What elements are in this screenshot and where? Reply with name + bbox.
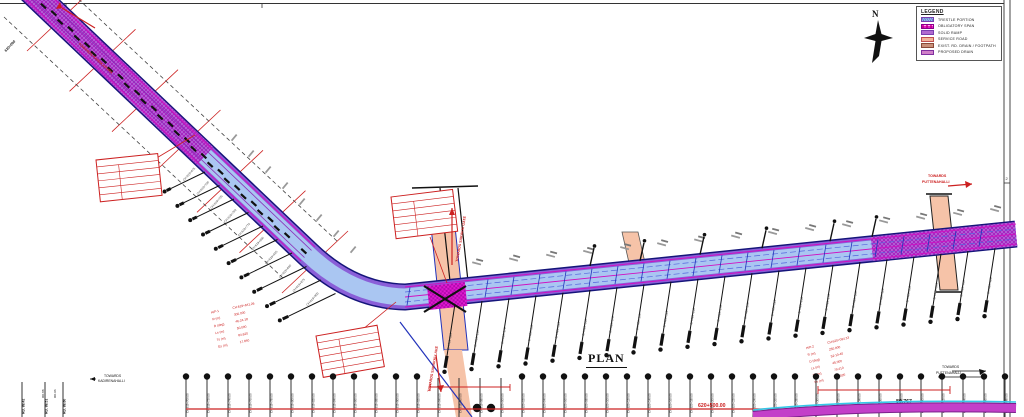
chainage-label: CH:620+000 [527, 324, 534, 342]
chainage-tick-blob [607, 339, 609, 351]
pier-cap [582, 373, 588, 379]
north-arrow-icon [864, 20, 893, 63]
utility-mark [661, 239, 668, 243]
table-cell: 84.620 [238, 331, 249, 337]
pier-chainage-label: CH:619+840.00 [333, 393, 337, 413]
chainage-label: CH:619+950 [473, 330, 480, 348]
chainage-tick-end [163, 190, 167, 194]
chainage-tick-end [523, 361, 527, 365]
utility-mark [805, 227, 814, 231]
table-cell: HIP-2 [806, 344, 815, 350]
chainage-tick-end [252, 290, 256, 294]
utility-mark [735, 232, 742, 236]
above-road-mark [590, 248, 594, 266]
utility-mark [842, 223, 851, 227]
cross-road-cap [412, 186, 478, 188]
above-road-mark [700, 237, 704, 255]
pier-chainage-label: CH:620+160.00 [669, 393, 673, 413]
chainage-tick-blob [244, 274, 249, 276]
legend-swatch-icon [921, 17, 934, 22]
chainage-tick-blob [231, 260, 236, 262]
utility-mark [809, 224, 816, 228]
chainage-label: CH:620+250 [797, 296, 804, 314]
legend-item: SOLID RAMP [921, 30, 999, 35]
table-cell: 79.410 [834, 366, 845, 372]
pier-cap [729, 373, 735, 379]
pier-cap [939, 373, 945, 379]
chainage-tick-end [469, 367, 473, 371]
chainage-tick-blob [769, 322, 771, 334]
pier-chainage-label: CH:619+780.00 [270, 393, 274, 413]
solid-ramp-hatch [28, 0, 205, 156]
pier-cap [414, 373, 420, 379]
chainage-label: CH:620+325 [878, 288, 885, 306]
pier-chainage-label: CH:619+920.00 [417, 393, 421, 413]
chainage-tick-end [442, 370, 446, 374]
legend-swatch-icon [921, 37, 934, 42]
pier-cap [624, 373, 630, 379]
pier-chainage-label: CH:620+120.00 [627, 393, 631, 413]
table-cell: HIP-1 [211, 309, 220, 315]
road-centerline [405, 234, 1016, 297]
utility-mark [916, 216, 925, 220]
pier-cap [918, 373, 924, 379]
chainage-tick-end [685, 345, 689, 349]
table-cell: Ls (m) [811, 365, 821, 371]
table-cell: Es (m) [218, 343, 228, 349]
chainage-tick-blob [796, 320, 798, 332]
pier-chainage-label: CH:620+000.00 [501, 393, 505, 413]
pier-cap [372, 373, 378, 379]
pier-chainage-label: CH:620+040.00 [543, 393, 547, 413]
chainage-tick-end [214, 247, 218, 251]
north-label: N [872, 9, 879, 19]
chainage-tick-blob [283, 316, 289, 319]
chainage-label: CH:620+075 [608, 316, 615, 334]
above-road-mark [830, 223, 834, 241]
chainage-tick-end [175, 204, 179, 208]
pier-cap [246, 373, 252, 379]
utility-mark [768, 231, 777, 235]
table-cell: 250.000 [829, 345, 841, 352]
chainage-tick-end [847, 328, 851, 332]
lane-line [405, 229, 1016, 292]
utility-mark [731, 235, 740, 239]
utility-mark [883, 216, 890, 220]
chainage-tick-end [793, 333, 797, 337]
chainage-tick-end [188, 218, 192, 222]
pier-cap [561, 373, 567, 379]
chainage-label: CH:620+425 [986, 277, 993, 295]
utility-mark [282, 182, 289, 189]
chainage-tick-end [712, 342, 716, 346]
towards-label-right: PUTTENAHALLI [922, 180, 950, 184]
chainage-tick-end [928, 320, 932, 324]
pier-chainage-label: CH:619+940.00 [438, 393, 442, 413]
legend-item: OBLIGATORY SPAN [921, 24, 999, 29]
chainage-tick-end [766, 336, 770, 340]
elev-left-label: RD. 88.51 [45, 399, 49, 414]
chainage-label: CH:620+300 [851, 291, 858, 309]
utility-mark [583, 250, 592, 254]
chainage-label: CH:620+200 [743, 302, 750, 320]
pier-cap [204, 373, 210, 379]
pier-chainage-label: CH:619+860.00 [354, 393, 358, 413]
pier-cap [267, 373, 273, 379]
towards-label-right: TOWARDS [928, 174, 947, 178]
pier-cap [183, 373, 189, 379]
legend-item-label: EXIST. RD. DRAIN / FOOTPATH [938, 44, 996, 48]
chainage-tick-blob [499, 350, 501, 362]
legend-swatch-icon [921, 43, 934, 48]
border-tick-label: 2 [1006, 176, 1009, 181]
chainage-tick-blob [823, 317, 825, 329]
chainage-label: CH:620+050 [581, 318, 588, 336]
elev-left-label: RD. 88.60 [63, 399, 67, 414]
pier-cap [750, 373, 756, 379]
utility-mark [846, 220, 853, 224]
utility-mark [476, 258, 483, 262]
table-cell: CH:620+094.33 [827, 336, 850, 345]
chainage-label: CH:620+175 [716, 305, 723, 323]
above-road-mark-end [833, 219, 837, 223]
pier-cap [834, 373, 840, 379]
chainage-tick-blob [580, 342, 582, 354]
pier-cap [309, 373, 315, 379]
chainage-label: CH:620+400 [959, 279, 966, 297]
utility-mark [513, 255, 520, 259]
pier-chainage-label: CH:620+220.00 [732, 393, 736, 413]
pier-chainage-label: CH:619+760.00 [249, 393, 253, 413]
legend-swatch-icon [921, 30, 934, 35]
pier-chainage-label: CH:620+060.00 [564, 393, 568, 413]
chainage-tick-blob [985, 300, 987, 312]
utility-mark [509, 258, 518, 262]
legend-item-label: SERVICE ROAD [938, 37, 968, 41]
pier-chainage-label: CH:619+800.00 [291, 393, 295, 413]
pier-elevation-circle [473, 404, 481, 412]
pier-chainage-label: CH:620+080.00 [585, 393, 589, 413]
utility-mark [772, 228, 779, 232]
chainage-label: CH:620+150 [689, 307, 696, 325]
table-cell: 50.000 [236, 325, 247, 331]
corner-label: RD.88 [41, 389, 45, 398]
pier-cap [351, 373, 357, 379]
chainage-tick-blob [257, 288, 262, 291]
utility-mark [333, 230, 340, 237]
chainage-label: CH:620+350 [905, 285, 912, 303]
legend-box: LEGEND TRESTLE PORTIONOBLIGATORY SPANSOL… [916, 6, 1002, 61]
legend-item: TRESTLE PORTION [921, 17, 999, 22]
chainage-tick-end [739, 339, 743, 343]
utility-mark [546, 254, 555, 258]
pier-cap [687, 373, 693, 379]
utility-mark [657, 242, 666, 246]
chainage-tick-blob [904, 309, 906, 321]
legend-item: PROPOSED DRAIN [921, 50, 999, 55]
pier-chainage-label: CH:619+720.00 [207, 393, 211, 413]
pier-cap [1002, 373, 1008, 379]
utility-mark [990, 208, 999, 212]
above-road-mark [872, 219, 876, 237]
utility-mark [694, 238, 703, 242]
above-road-mark-end [765, 226, 769, 230]
chainage-tick-end [227, 261, 231, 265]
chainage-tick-blob [958, 303, 960, 315]
chainage-tick-end [496, 364, 500, 368]
above-road-mark-end [703, 233, 707, 237]
pier-cap [666, 373, 672, 379]
legend-swatch-icon [921, 24, 934, 29]
chainage-tick-blob [553, 345, 555, 357]
above-road-mark-end [593, 244, 597, 248]
table-cell: R (m) [212, 316, 221, 322]
pier-cap [897, 373, 903, 379]
chainage-tick-blob [445, 356, 447, 368]
pier-cap [225, 373, 231, 379]
chainage-tick-end [658, 347, 662, 351]
pier-chainage-label: CH:620+100.00 [606, 393, 610, 413]
chainage-tick-blob [850, 314, 852, 326]
above-road-mark-end [875, 215, 879, 219]
chainage-tick-blob [472, 353, 474, 365]
utility-mark [231, 134, 238, 141]
pier-cap [876, 373, 882, 379]
utility-mark [920, 213, 927, 217]
chainage-tick-end [577, 356, 581, 360]
chainage-tick-end [550, 359, 554, 363]
plan-view-title: PLAN [586, 351, 627, 368]
chainage-label: CH:620+225 [770, 299, 777, 317]
elev-left-label: RD. 88.42 [22, 399, 26, 414]
table-cell: 17.840 [239, 338, 250, 344]
pier-elevation-circle [487, 404, 495, 412]
chainage-label: CH:620+125 [662, 310, 669, 328]
legend-item-label: PROPOSED DRAIN [938, 50, 973, 54]
above-road-mark [762, 230, 766, 248]
chainage-tick-blob [742, 325, 744, 337]
pier-chainage-label: CH:619+740.00 [228, 393, 232, 413]
edge-chainage-label: 620+000 [4, 40, 17, 53]
legend-item-label: OBLIGATORY SPAN [938, 24, 974, 28]
utility-mark [879, 219, 888, 223]
main-road-deck [28, 0, 1016, 297]
chainage-tick-blob [192, 217, 196, 219]
drawing-sheet: LEGEND TRESTLE PORTIONOBLIGATORY SPANSOL… [0, 0, 1024, 417]
chainage-label: CH:620+100 [635, 313, 642, 331]
legend-item-label: SOLID RAMP [938, 31, 962, 35]
chainage-label: CH:620+025 [554, 321, 561, 339]
pier-chainage-label: CH:619+820.00 [312, 393, 316, 413]
pier-cap [960, 373, 966, 379]
pier-cap [330, 373, 336, 379]
legend-item: EXIST. RD. DRAIN / FOOTPATH [921, 43, 999, 48]
chainage-label: CH:619+975 [500, 327, 507, 345]
utility-mark [994, 205, 1001, 209]
utility-mark [953, 212, 962, 216]
pier-cap [792, 373, 798, 379]
pier-cap [393, 373, 399, 379]
pier-cap [645, 373, 651, 379]
pier-cap [603, 373, 609, 379]
legend-title: LEGEND [921, 9, 999, 15]
pier-chainage-label: CH:619+880.00 [375, 393, 379, 413]
table-cell: 52-10-40 [830, 351, 844, 358]
exist-road-edge [58, 0, 338, 242]
towards-label-bottom-left: KADIRENAHALLI [98, 379, 125, 383]
chainage-tick-blob [634, 336, 636, 348]
chainage-tick-end [278, 318, 282, 322]
chainage-tick-blob [688, 331, 690, 343]
chainage-tick-end [982, 314, 986, 318]
utility-mark [350, 246, 357, 253]
table-cell: 45.000 [832, 359, 843, 365]
legend-item-label: TRESTLE PORTION [938, 18, 974, 22]
chainage-tick-end [265, 304, 269, 308]
chainage-tick-blob [661, 334, 663, 346]
pier-chainage-label: CH:619+960.00 [459, 393, 463, 413]
arrow-head [90, 377, 95, 381]
chainage-tick-blob [715, 328, 717, 340]
table-cell: R (m) [807, 351, 816, 357]
utility-mark [957, 209, 964, 213]
chainage-tick-blob [218, 245, 223, 247]
chainage-tick-blob [526, 348, 528, 360]
chainage-tick-end [820, 331, 824, 335]
pier-cap [708, 373, 714, 379]
utility-mark [550, 251, 557, 255]
chainage-tick-blob [205, 231, 210, 233]
exist-road-edge [4, 17, 284, 279]
chainage-tick-end [901, 322, 905, 326]
chainage-tick-blob [180, 203, 184, 205]
lane-line [405, 239, 1016, 302]
legend-rows: TRESTLE PORTIONOBLIGATORY SPANSOLID RAMP… [921, 17, 999, 55]
utility-mark [248, 150, 255, 157]
pier-cap [855, 373, 861, 379]
chainage-tick-blob [931, 306, 933, 318]
chainage-tick-end [201, 232, 205, 236]
pier-cap [813, 373, 819, 379]
table-cell: 300.000 [234, 310, 246, 316]
pier-cap [540, 373, 546, 379]
pier-chainage-label: CH:620+180.00 [690, 393, 694, 413]
chainage-tick-end [239, 275, 243, 279]
chainage-label: CH:620+275 [824, 293, 831, 311]
table-cell: D (deg) [809, 357, 820, 363]
pier-cap [771, 373, 777, 379]
pier-cap [981, 373, 987, 379]
utility-mark [472, 261, 481, 265]
utility-mark [316, 214, 323, 221]
towards-label-bottom-left: TOWARDS [104, 374, 122, 378]
table-cell: D (deg) [213, 322, 224, 328]
corner-label: RD.96 [53, 389, 57, 398]
table-cell: Ls (m) [215, 329, 225, 335]
table-cell: 46-24-18 [235, 317, 249, 324]
pier-chainage-label: CH:619+700.00 [186, 393, 190, 413]
pier-chainage-label: CH:620+020.00 [522, 393, 526, 413]
plan-canvas: 2CH:619+675CH:619+700CH:619+725CH:619+75… [0, 0, 1024, 417]
table-cell: Ts (m) [216, 336, 225, 342]
pier-chainage-label: CH:620+140.00 [648, 393, 652, 413]
pier-chainage-label: CH:619+900.00 [396, 393, 400, 413]
legend-item: SERVICE ROAD [921, 37, 999, 42]
chainage-label: CH:620+375 [932, 282, 939, 300]
chainage-tick-end [955, 317, 959, 321]
pier-cap [288, 373, 294, 379]
arrow-head [965, 181, 972, 188]
chainage-tick-blob [167, 189, 171, 191]
chainage-tick-end [631, 350, 635, 354]
chainage-tick-blob [877, 311, 879, 323]
table-cell: CH:619+841.26 [232, 301, 255, 310]
utility-mark [299, 198, 306, 205]
chainage-tick-end [874, 325, 878, 329]
utility-mark [265, 166, 272, 173]
chainage-tick-blob [270, 302, 275, 305]
above-road-mark-end [643, 239, 647, 243]
datum-chainage-text: 620+500.00 [698, 403, 726, 409]
towards-label-bottom-right: TOWARDS [942, 365, 960, 369]
pier-cap [519, 373, 525, 379]
legend-swatch-icon [921, 50, 934, 55]
